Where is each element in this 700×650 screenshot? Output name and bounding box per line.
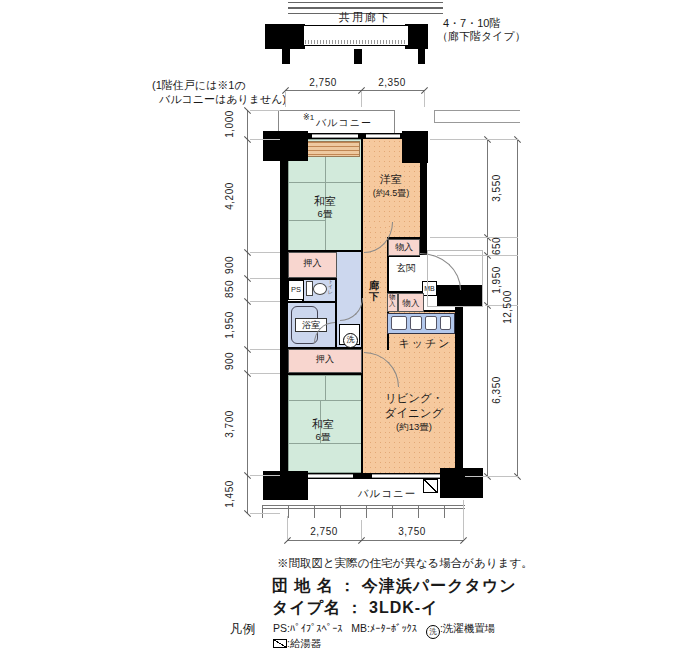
dim-right-1: 3,550 xyxy=(491,166,503,210)
hallway xyxy=(363,225,387,473)
living-label-2: ダイニング xyxy=(378,407,450,420)
dim-ext xyxy=(250,301,280,302)
legend-heater-icon xyxy=(273,639,287,648)
dim-line-left xyxy=(247,110,248,513)
disclaimer-text: ※間取図と実際の住宅が異なる場合があります。 xyxy=(277,556,557,571)
estate-name-row: 団 地 名 ： 今津浜パークタウン xyxy=(272,576,517,597)
type-name-row: タイプ名 ： 3LDK-イ xyxy=(272,598,439,619)
dim-ext xyxy=(361,91,362,107)
legend-washer-icon: 洗 xyxy=(426,625,440,639)
corridor-leg xyxy=(418,49,425,64)
window-washitsu-upper xyxy=(312,134,358,138)
dim-left-2: 4,200 xyxy=(224,174,236,218)
neighbor-balcony-line xyxy=(434,122,520,123)
kitchen-counter-cell xyxy=(425,316,437,330)
toilet-bowl xyxy=(313,283,327,295)
dim-top-2: 2,350 xyxy=(370,77,414,89)
dim-ext xyxy=(250,475,280,476)
dim-ext xyxy=(465,476,518,477)
window-washitsu-lower xyxy=(303,474,353,478)
dim-bottom-1: 2,750 xyxy=(302,526,346,538)
dim-bottom-2: 3,750 xyxy=(390,526,434,538)
legend-row-2: :給湯器 xyxy=(273,637,321,650)
dim-ext xyxy=(287,516,288,540)
dim-ext xyxy=(250,373,280,374)
dim-ext xyxy=(437,255,518,256)
dim-right-4: 6,350 xyxy=(491,368,503,412)
tatami-line xyxy=(288,400,362,401)
dim-ext xyxy=(250,513,280,514)
living-label-1: リビング・ xyxy=(380,392,448,405)
dim-ext xyxy=(463,500,464,540)
water-heater-symbol xyxy=(423,479,438,493)
monoire-top-label: 物入 xyxy=(388,242,420,252)
tatami-line xyxy=(325,157,326,182)
dim-left-6: 900 xyxy=(224,339,236,383)
balcony-railing-line xyxy=(262,508,465,509)
balcony-top-label: バルコニー xyxy=(316,116,378,130)
washer-circle-label: 洗 xyxy=(343,333,358,348)
dim-ext xyxy=(285,91,286,107)
dim-ext xyxy=(430,237,518,238)
living-size: (約13畳) xyxy=(382,422,446,433)
oshiire-lower-label: 押入 xyxy=(288,354,362,364)
dim-top-1: 2,750 xyxy=(301,77,345,89)
washitsu-upper-label: 和室 xyxy=(297,195,353,208)
dim-ext xyxy=(250,349,280,350)
yoshitsu-label: 洋室 xyxy=(363,173,419,186)
column-bottom-right xyxy=(440,468,483,498)
dim-ext xyxy=(250,252,280,253)
kitchen-sink xyxy=(391,316,407,330)
washitsu-lower-size: 6畳 xyxy=(295,432,351,443)
neighbor-balcony-line xyxy=(434,110,435,123)
balcony-railing xyxy=(262,505,465,518)
dim-line-top xyxy=(285,90,424,91)
dim-ext xyxy=(250,278,280,279)
dim-ext xyxy=(424,91,425,107)
wall-right-lower xyxy=(455,307,463,473)
corridor-slab-hatch xyxy=(305,40,405,44)
dim-ext xyxy=(430,139,518,140)
washitsu-lower-label: 和室 xyxy=(295,418,351,431)
washitsu-upper-size: 6畳 xyxy=(297,209,353,220)
yoshitsu-size: (約4.5畳) xyxy=(359,188,423,198)
wall-left xyxy=(280,133,288,478)
legend-mb: MB:ﾒｰﾀｰﾎﾞｯｸｽ xyxy=(351,622,417,634)
window-yoshitsu xyxy=(366,134,400,138)
oshiire-upper-label: 押入 xyxy=(290,258,335,268)
wall-oshiire2-bottom xyxy=(288,373,362,375)
estate-name: 今津浜パークタウン xyxy=(362,577,517,594)
monoire-vertical-label: 物入 xyxy=(389,294,396,308)
dim-line-right-total xyxy=(517,139,518,476)
balcony-note-line1: (1階住戸には※1の xyxy=(152,79,282,92)
dim-left-8: 1,450 xyxy=(224,472,236,516)
balcony-bottom-label: バルコニー xyxy=(352,487,422,501)
dim-ext xyxy=(250,110,280,111)
estate-colon: ： xyxy=(339,577,356,594)
genkan-label: 玄関 xyxy=(392,262,420,275)
corridor-column-left xyxy=(265,24,305,49)
corridor-leg xyxy=(282,49,290,64)
dim-left-7: 3,700 xyxy=(224,402,236,446)
hallway-label: 廊下 xyxy=(369,281,379,302)
dim-ext xyxy=(361,520,362,540)
toilet-label: トイレ xyxy=(328,279,333,295)
neighbor-balcony-line xyxy=(434,110,520,111)
tatami-line xyxy=(325,375,326,400)
dim-right-total: 12,500 xyxy=(502,285,514,329)
legend-title: 凡例 xyxy=(230,621,255,638)
kitchen-counter-cell xyxy=(410,316,422,330)
floor-note-line2: （廊下階タイプ） xyxy=(437,30,533,43)
legend-heater-text: :給湯器 xyxy=(287,637,321,649)
balcony-top-ref: ※1 xyxy=(303,113,315,123)
ps-label: PS xyxy=(288,285,304,294)
common-corridor-label: 共用廊下 xyxy=(320,11,410,24)
type-colon: ： xyxy=(347,599,364,616)
tatami-line xyxy=(288,220,325,221)
entry-alcove-outline xyxy=(427,250,483,307)
corridor-leg xyxy=(354,49,362,64)
estate-label: 団 地 名 xyxy=(272,577,334,594)
legend-ps: PS:ﾊﾟｲﾌﾟｽﾍﾟｰｽ xyxy=(273,622,342,634)
tatami-line xyxy=(288,443,362,444)
window-living xyxy=(372,474,440,478)
dim-line-bottom xyxy=(287,540,463,541)
dim-left-1: 1,000 xyxy=(224,102,236,146)
type-label: タイプ名 xyxy=(272,599,341,616)
legend-wash-text: :洗濯機置場 xyxy=(440,622,495,634)
toilet-tank xyxy=(306,281,313,296)
monoire-horizontal-label: 物入 xyxy=(398,298,424,310)
type-value: 3LDK-イ xyxy=(369,599,438,616)
kitchen-stove xyxy=(440,316,451,330)
dim-ext xyxy=(250,139,280,140)
wall-toilet-bath xyxy=(288,301,335,303)
floor-note-line1: 4・7・10階 xyxy=(443,17,523,30)
floorplan-page: 共用廊下 4・7・10階 （廊下階タイプ） (1階住戸には※1の バルコニーはあ… xyxy=(0,0,700,650)
washer-symbol: 洗 xyxy=(343,328,358,348)
kitchen-label: キッチン xyxy=(396,337,454,350)
